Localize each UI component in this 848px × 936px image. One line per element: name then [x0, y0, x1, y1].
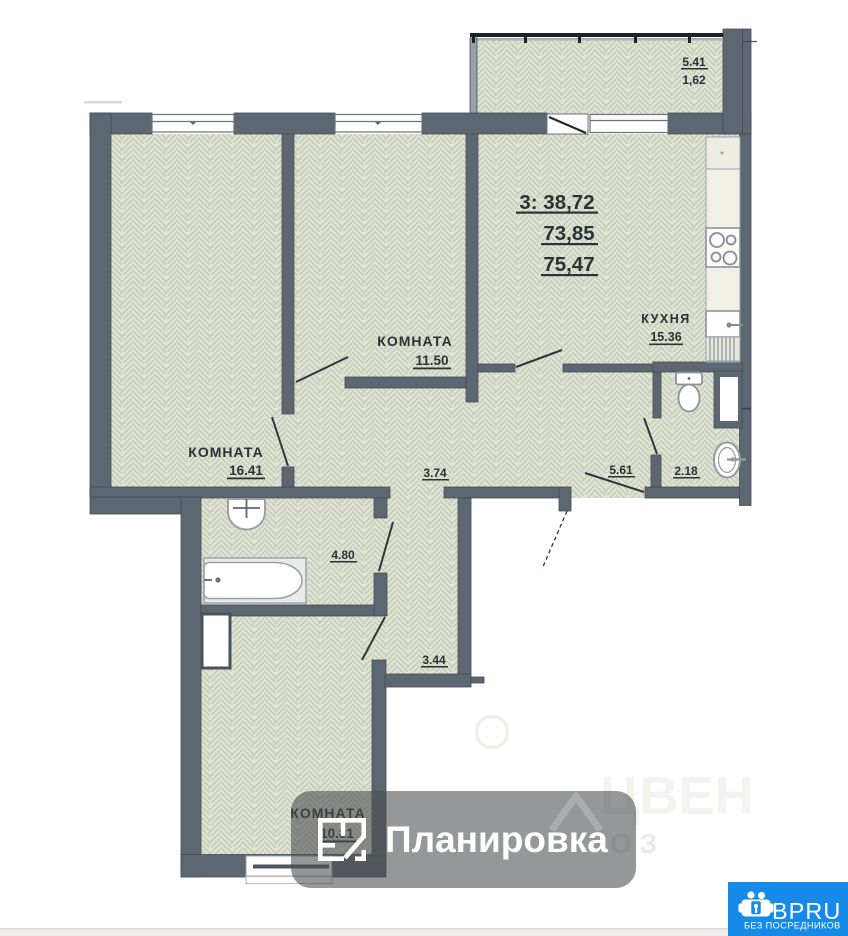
- svg-text:КУХНЯ: КУХНЯ: [641, 312, 691, 326]
- svg-text:11.50: 11.50: [415, 353, 448, 368]
- svg-text:75,47: 75,47: [543, 253, 594, 276]
- svg-text:КОМНАТА: КОМНАТА: [377, 333, 452, 349]
- svg-text:4.80: 4.80: [331, 548, 355, 562]
- svg-text:КОМНАТА: КОМНАТА: [188, 444, 263, 460]
- svg-text:Планировка: Планировка: [385, 819, 608, 860]
- svg-text:2.18: 2.18: [674, 464, 698, 478]
- svg-text:5.41: 5.41: [682, 55, 706, 69]
- svg-text:3: 38,72: 3: 38,72: [519, 191, 594, 214]
- svg-text:БЕЗ ПОСРЕДНИКОВ: БЕЗ ПОСРЕДНИКОВ: [744, 921, 841, 931]
- svg-text:15.36: 15.36: [650, 330, 681, 344]
- svg-text:16.41: 16.41: [229, 463, 263, 478]
- svg-text:3.44: 3.44: [422, 653, 446, 667]
- svg-text:73,85: 73,85: [543, 222, 594, 245]
- svg-text:1,62: 1,62: [682, 73, 706, 87]
- svg-text:5.61: 5.61: [609, 463, 633, 477]
- svg-text:3.74: 3.74: [423, 466, 447, 480]
